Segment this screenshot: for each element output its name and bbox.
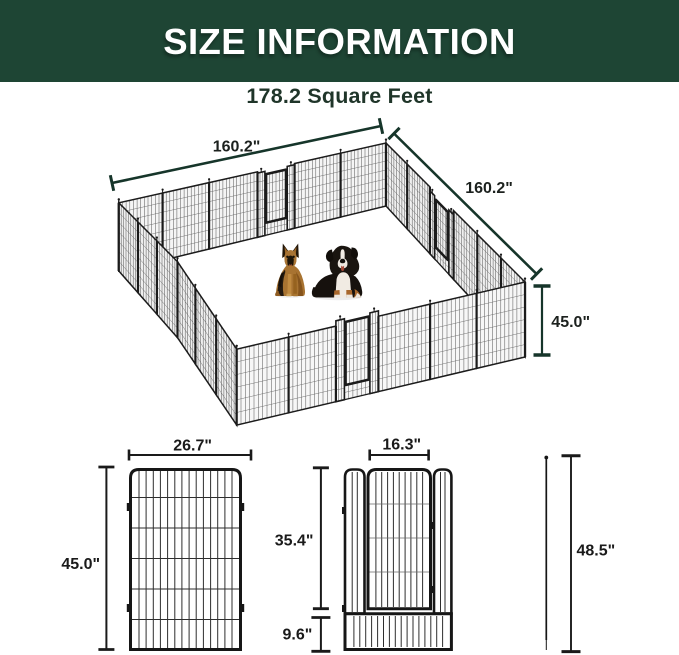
svg-text:45.0": 45.0" [61,556,100,573]
svg-text:16.3": 16.3" [382,437,421,454]
svg-text:35.4": 35.4" [275,533,314,550]
svg-text:160.2": 160.2" [213,138,261,155]
svg-text:26.7": 26.7" [173,437,212,454]
svg-text:160.2": 160.2" [465,180,513,197]
svg-text:48.5": 48.5" [577,543,616,560]
svg-text:9.6": 9.6" [282,626,312,643]
svg-text:45.0": 45.0" [551,314,590,331]
